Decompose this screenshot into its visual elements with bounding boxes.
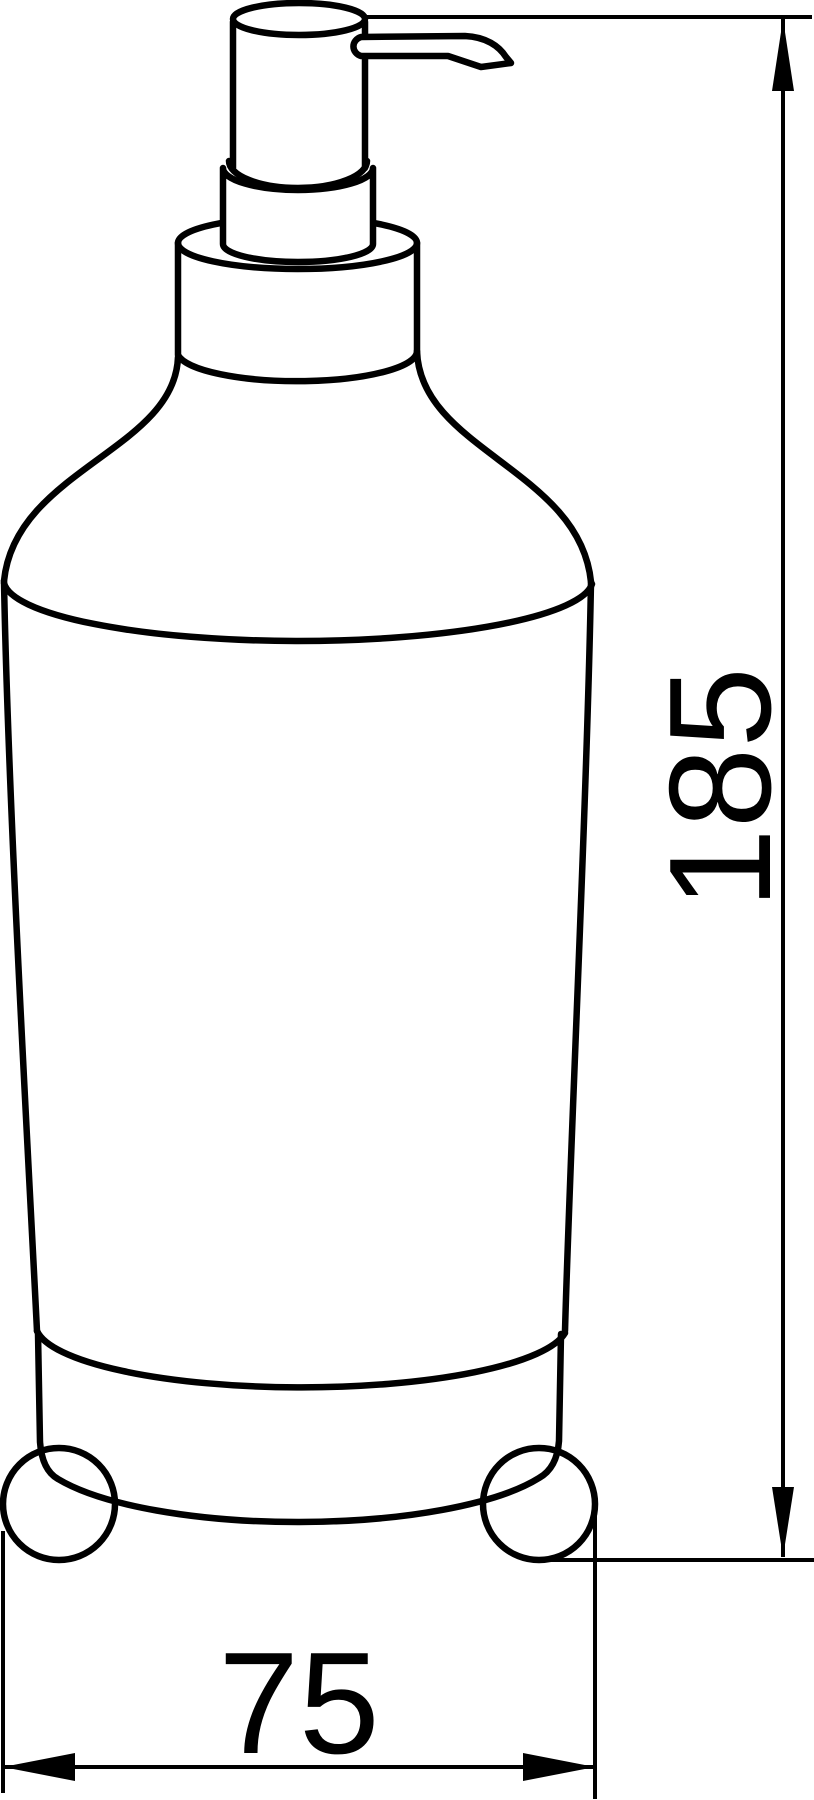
- ball-foot-right: [483, 1448, 595, 1560]
- pump-head-body: [233, 20, 365, 168]
- height-arrow-down-icon: [772, 1487, 794, 1557]
- ball-foot-left: [3, 1448, 115, 1560]
- body-side-right: [565, 582, 591, 1331]
- soap-dispenser-drawing: 185 75: [0, 0, 814, 1800]
- shoulder-left: [4, 357, 178, 581]
- width-arrow-left-icon: [3, 1753, 75, 1781]
- pump-head-top: [233, 3, 365, 35]
- height-arrow-up-icon: [772, 19, 794, 91]
- width-arrow-right-icon: [523, 1753, 595, 1781]
- pump-collar: [223, 168, 373, 262]
- width-dimension-label: 75: [218, 1622, 379, 1784]
- pump-spout: [353, 36, 511, 67]
- body-side-left: [4, 581, 37, 1331]
- technical-drawing-canvas: 185 75: [0, 0, 814, 1800]
- body-bottom-arc: [37, 1331, 565, 1387]
- width-dimension: 75: [3, 1497, 595, 1799]
- shoulder-right: [417, 351, 591, 582]
- height-dimension-label: 185: [639, 667, 801, 909]
- body-top-arc: [4, 583, 592, 641]
- dispenser-outline: [3, 3, 595, 1560]
